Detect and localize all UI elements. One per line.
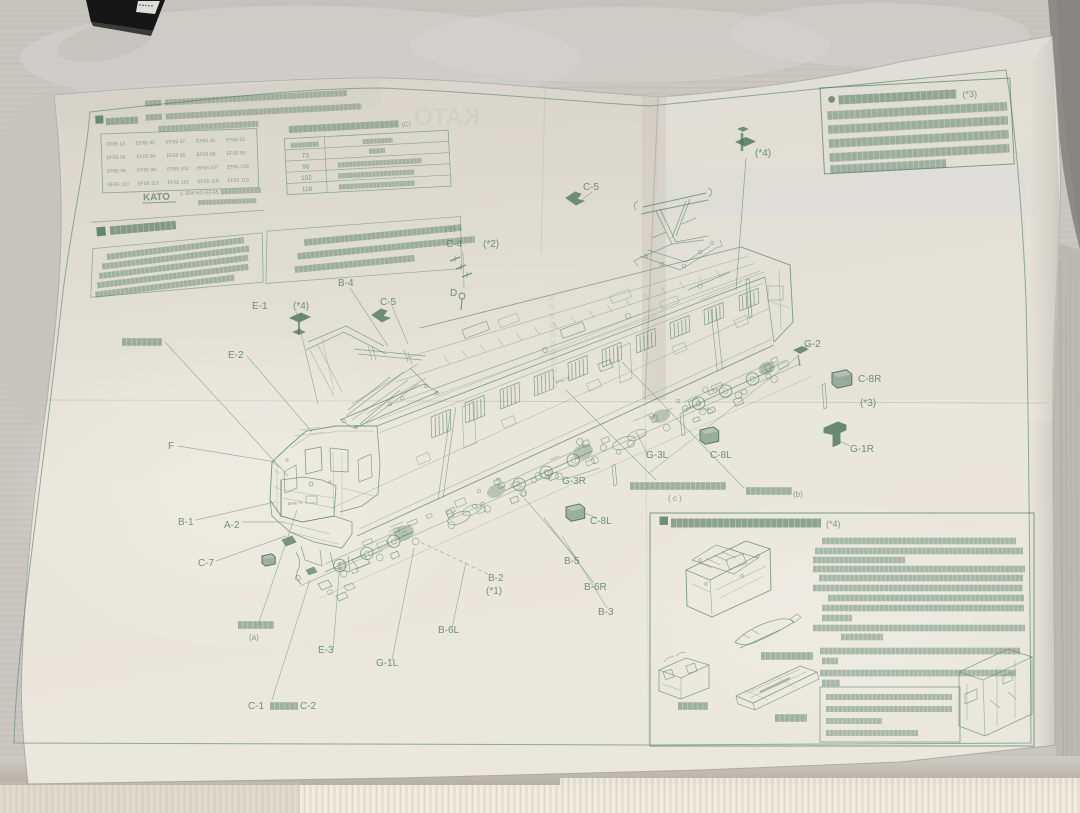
svg-text:118: 118 [302, 186, 313, 194]
svg-text:( c ): ( c ) [668, 494, 682, 503]
svg-text:B-6L: B-6L [438, 625, 460, 636]
svg-text:EF65 110: EF65 110 [107, 182, 129, 189]
svg-text:C-8R: C-8R [858, 374, 881, 385]
svg-text:EF65 85: EF65 85 [167, 153, 186, 160]
svg-text:E-1: E-1 [252, 301, 268, 312]
svg-text:102: 102 [301, 174, 313, 182]
svg-text:(*4): (*4) [293, 301, 309, 312]
svg-text:(*4): (*4) [826, 519, 841, 529]
svg-text:E-3: E-3 [318, 645, 334, 656]
svg-text:EF65 42: EF65 42 [136, 140, 155, 147]
svg-text:(*3): (*3) [860, 398, 876, 409]
svg-text:C-8L: C-8L [590, 516, 612, 527]
svg-text:EF65 107: EF65 107 [197, 165, 219, 172]
svg-text:B-3: B-3 [598, 607, 614, 618]
svg-text:EF65 88: EF65 88 [196, 151, 215, 158]
svg-text:EF65 119: EF65 119 [227, 177, 249, 184]
svg-text:G-3L: G-3L [646, 450, 669, 461]
svg-text:C-5: C-5 [380, 297, 397, 308]
svg-text:C-1: C-1 [248, 701, 265, 712]
svg-text:C-7: C-7 [198, 558, 215, 569]
svg-text:B-4: B-4 [338, 278, 354, 289]
svg-text:(C): (C) [402, 121, 411, 128]
svg-text:C-4: C-4 [446, 239, 463, 250]
svg-text:(*2): (*2) [444, 226, 455, 234]
svg-text:EF65 113: EF65 113 [137, 180, 159, 187]
svg-text:B-2: B-2 [488, 573, 504, 584]
svg-text:D: D [450, 288, 457, 299]
svg-text:A-2: A-2 [224, 520, 240, 531]
svg-text:E-2: E-2 [228, 350, 244, 361]
svg-text:EF65 53: EF65 53 [226, 137, 245, 144]
svg-text:EF65 96: EF65 96 [107, 168, 126, 175]
svg-text:96: 96 [302, 163, 310, 170]
svg-text:G-1L: G-1L [376, 658, 399, 669]
svg-text:EF65 108: EF65 108 [227, 164, 249, 171]
svg-text:(a): (a) [249, 633, 259, 642]
svg-text:EF65 58: EF65 58 [107, 155, 126, 162]
svg-text:(*1): (*1) [486, 586, 502, 597]
svg-text:B-1: B-1 [178, 517, 194, 528]
svg-text:G-3R: G-3R [562, 476, 586, 487]
svg-text:C-2: C-2 [300, 701, 317, 712]
svg-text:F: F [168, 441, 174, 452]
svg-text:EF65 49: EF65 49 [196, 138, 215, 145]
svg-text:B-6R: B-6R [584, 582, 607, 593]
svg-text:(*4): (*4) [755, 148, 771, 159]
svg-text:G-1R: G-1R [850, 444, 874, 455]
svg-text:(*3): (*3) [962, 89, 977, 100]
svg-text:EF65 95: EF65 95 [226, 150, 245, 157]
svg-text:EF65 84: EF65 84 [137, 154, 156, 161]
svg-text:B-5: B-5 [564, 556, 580, 567]
svg-text:C-5: C-5 [583, 182, 600, 193]
svg-text:KATO: KATO [143, 192, 171, 204]
svg-text:EF65 99: EF65 99 [137, 167, 156, 174]
svg-text:C-8L: C-8L [710, 450, 732, 461]
svg-text:G-2: G-2 [804, 339, 821, 350]
svg-text:73: 73 [301, 152, 309, 159]
svg-text:EF65 13: EF65 13 [106, 141, 125, 148]
svg-text:EF65 102: EF65 102 [167, 166, 189, 173]
svg-text:(b): (b) [793, 490, 803, 499]
svg-text:KATO: KATO [414, 104, 480, 131]
svg-text:EF65 47: EF65 47 [166, 139, 185, 146]
svg-text:EF65 115: EF65 115 [167, 179, 189, 186]
svg-text:EF65 118: EF65 118 [197, 178, 219, 185]
svg-text:(*2): (*2) [483, 239, 499, 250]
